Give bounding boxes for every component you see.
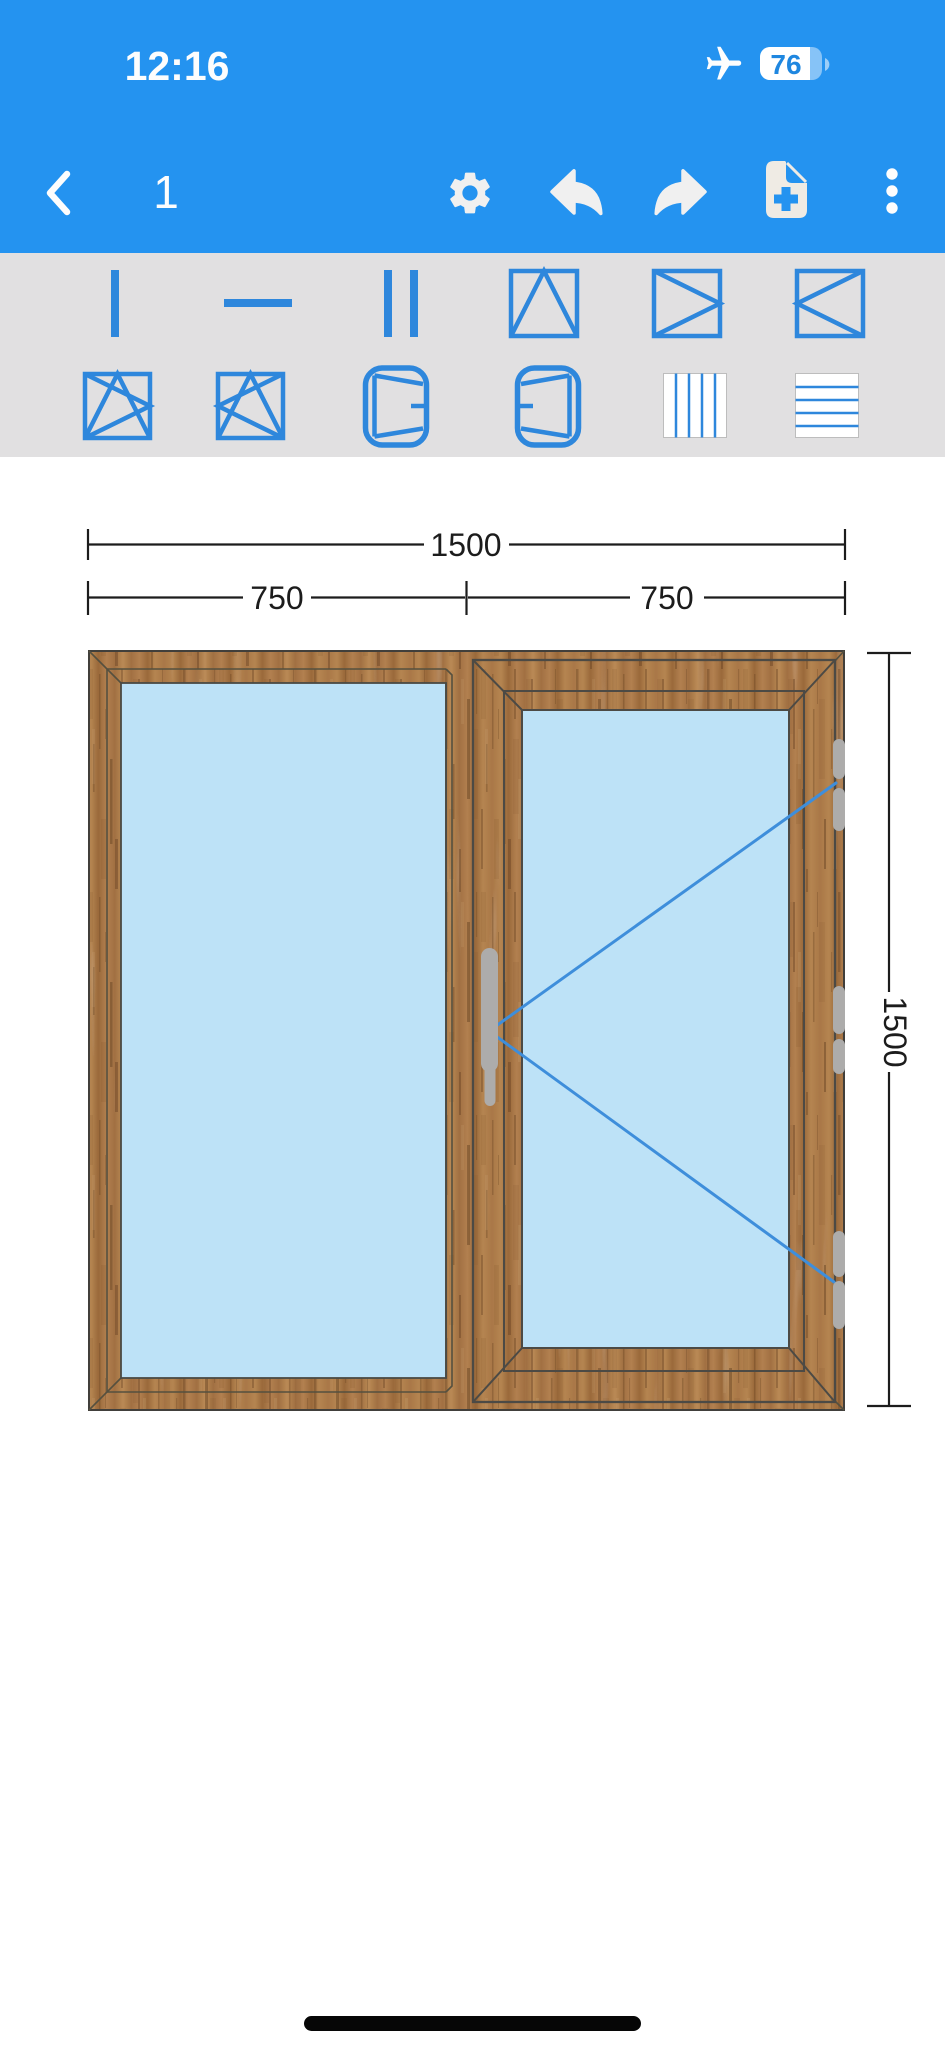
svg-text:750: 750 [640, 580, 693, 616]
svg-text:1: 1 [153, 166, 179, 218]
svg-text:1500: 1500 [430, 527, 501, 563]
svg-text:12:16: 12:16 [125, 43, 230, 89]
svg-text:1500: 1500 [877, 996, 913, 1067]
svg-text:76: 76 [770, 49, 801, 80]
svg-text:750: 750 [250, 580, 303, 616]
